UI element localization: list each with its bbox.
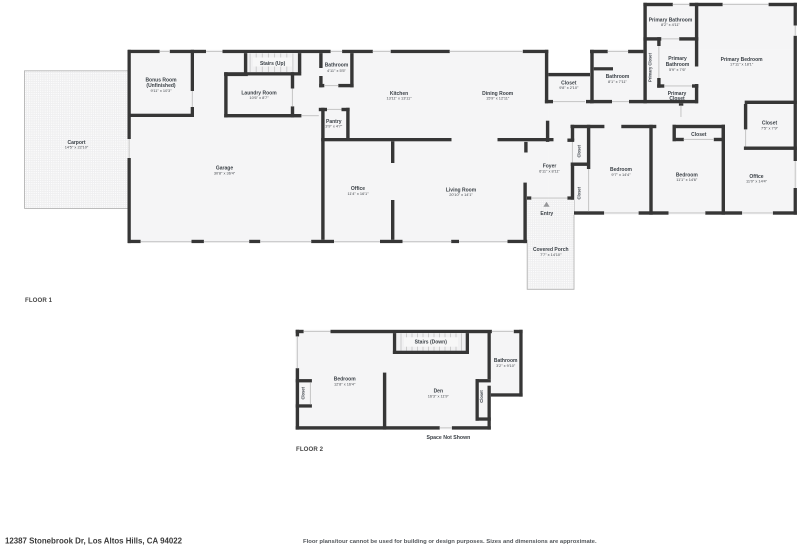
svg-text:9'8" x 2'10": 9'8" x 2'10" xyxy=(559,85,579,90)
svg-text:9'11" x 10'3": 9'11" x 10'3" xyxy=(150,88,172,93)
svg-text:30'8" x 36'4": 30'8" x 36'4" xyxy=(214,170,236,175)
svg-text:13'11" x 13'11": 13'11" x 13'11" xyxy=(386,96,412,101)
svg-text:FLOOR 1: FLOOR 1 xyxy=(25,297,53,304)
svg-text:4'11" x 5'5": 4'11" x 5'5" xyxy=(327,68,347,73)
svg-text:Stairs (Up): Stairs (Up) xyxy=(260,61,286,67)
svg-text:6'11" x 8'11": 6'11" x 8'11" xyxy=(539,169,560,174)
svg-text:3'9" x 4'7": 3'9" x 4'7" xyxy=(325,124,343,129)
svg-text:16'3" x 11'9": 16'3" x 11'9" xyxy=(428,393,450,398)
svg-text:11'0" x 14'4": 11'0" x 14'4" xyxy=(746,179,768,184)
svg-text:Closet: Closet xyxy=(669,96,685,102)
svg-text:Closet: Closet xyxy=(691,132,707,138)
svg-text:15'9" x 12'11": 15'9" x 12'11" xyxy=(486,96,510,101)
svg-text:Space Not Shown: Space Not Shown xyxy=(426,435,470,441)
svg-text:Closet: Closet xyxy=(577,186,582,199)
svg-text:10'6" x 8'7": 10'6" x 8'7" xyxy=(249,95,269,100)
svg-text:Closet: Closet xyxy=(577,144,582,157)
svg-text:11'1" x 14'6": 11'1" x 14'6" xyxy=(676,177,698,182)
svg-text:7'7" x 14'10": 7'7" x 14'10" xyxy=(540,252,562,257)
svg-text:11'4" x 16'1": 11'4" x 16'1" xyxy=(347,191,369,196)
svg-text:8'1" x 7'11": 8'1" x 7'11" xyxy=(608,79,628,84)
svg-text:7'5" x 7'9": 7'5" x 7'9" xyxy=(761,125,779,130)
svg-text:FLOOR 2: FLOOR 2 xyxy=(296,446,324,453)
svg-text:8'2" x 4'11": 8'2" x 4'11" xyxy=(661,22,681,27)
svg-text:12'8" x 16'4": 12'8" x 16'4" xyxy=(334,381,356,386)
svg-text:Closet: Closet xyxy=(479,390,484,403)
svg-text:Primary Closet: Primary Closet xyxy=(648,52,653,82)
svg-text:Stairs (Down): Stairs (Down) xyxy=(415,340,448,346)
svg-text:Closet: Closet xyxy=(301,386,306,399)
svg-text:12387 Stonebrook Dr, Los Altos: 12387 Stonebrook Dr, Los Altos Hills, CA… xyxy=(5,537,183,546)
svg-text:9'7" x 14'4": 9'7" x 14'4" xyxy=(611,172,631,177)
svg-text:Entry: Entry xyxy=(540,211,553,217)
svg-text:5'9" x 7'6": 5'9" x 7'6" xyxy=(669,67,687,72)
svg-text:17'11" x 18'1": 17'11" x 18'1" xyxy=(730,62,754,67)
svg-text:14'5" x 22'10": 14'5" x 22'10" xyxy=(65,145,89,150)
svg-text:3'2" x 9'10": 3'2" x 9'10" xyxy=(496,363,516,368)
svg-text:20'10" x 14'1": 20'10" x 14'1" xyxy=(449,192,473,197)
svg-text:Floor plans/tour cannot be use: Floor plans/tour cannot be used for buil… xyxy=(303,539,597,545)
